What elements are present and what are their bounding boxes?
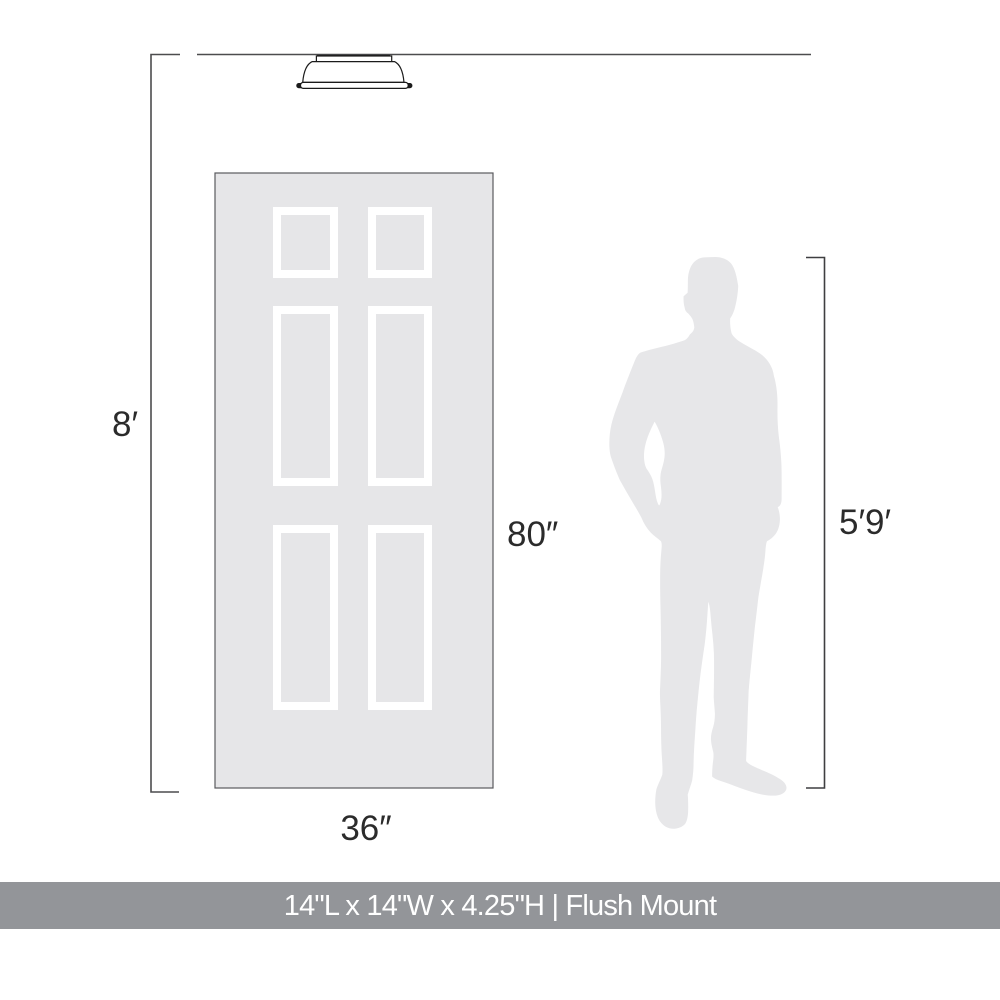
svg-text:5′9′: 5′9′ [839, 503, 891, 542]
svg-text:8′: 8′ [112, 405, 138, 444]
svg-text:36″: 36″ [340, 809, 391, 848]
svg-text:80″: 80″ [507, 515, 558, 554]
svg-text:14"L x 14"W x 4.25"H | Flush M: 14"L x 14"W x 4.25"H | Flush Mount [284, 890, 717, 922]
